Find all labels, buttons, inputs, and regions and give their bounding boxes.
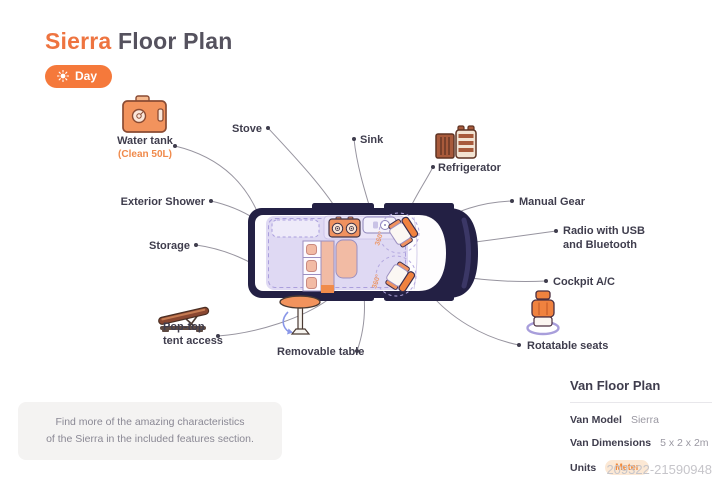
info-label-units: Units — [570, 462, 596, 474]
label-storage: Storage — [149, 240, 190, 252]
label-refrigerator: Refrigerator — [438, 162, 502, 174]
label-exterior-shower: Exterior Shower — [121, 196, 206, 208]
watermark-id: 209322-21590948 — [606, 462, 712, 477]
info-value-van-dimensions: 5 x 2 x 2m — [660, 437, 708, 449]
label-rotatable-seats: Rotatable seats — [527, 340, 608, 352]
label-cockpit-ac: Cockpit A/C — [553, 276, 615, 288]
table-in-van — [336, 240, 357, 278]
label-stove: Stove — [232, 123, 262, 135]
info-row-model: Van Model Sierra — [570, 414, 712, 426]
stove-unit — [329, 217, 360, 237]
features-note-line2: of the Sierra in the included features s… — [28, 431, 272, 448]
info-row-dimensions: Van Dimensions 5 x 2 x 2m — [570, 437, 712, 449]
label-water-tank-capacity: (Clean 50L) — [118, 149, 172, 160]
label-sink: Sink — [360, 134, 384, 146]
van-top-view: 360° 360° — [248, 203, 478, 301]
info-value-van-model: Sierra — [631, 414, 659, 426]
label-radio-line2: and Bluetooth — [563, 239, 637, 251]
floor-plan-page: Sierra Floor Plan Day — [0, 0, 720, 480]
label-radio-line1: Radio with USB — [563, 225, 645, 237]
info-label-van-dimensions: Van Dimensions — [570, 437, 651, 449]
storage-area — [272, 220, 319, 237]
label-pop-top-line2: tent access — [163, 335, 223, 347]
refrigerator-icon — [436, 126, 476, 158]
features-note-line1: Find more of the amazing characteristics — [28, 414, 272, 431]
rotatable-seats-icon — [528, 291, 559, 334]
label-pop-top-line1: Pop-top — [163, 321, 205, 333]
features-note: Find more of the amazing characteristics… — [18, 402, 282, 460]
info-panel-title: Van Floor Plan — [570, 378, 712, 393]
label-manual-gear: Manual Gear — [519, 196, 586, 208]
removable-table-icon — [280, 296, 320, 335]
label-water-tank: Water tank — [117, 135, 174, 147]
info-label-van-model: Van Model — [570, 414, 622, 426]
bed — [303, 241, 334, 293]
label-removable-table: Removable table — [277, 346, 364, 358]
info-panel-divider — [570, 402, 712, 403]
bed-step — [321, 285, 334, 293]
water-tank-icon — [123, 96, 166, 132]
